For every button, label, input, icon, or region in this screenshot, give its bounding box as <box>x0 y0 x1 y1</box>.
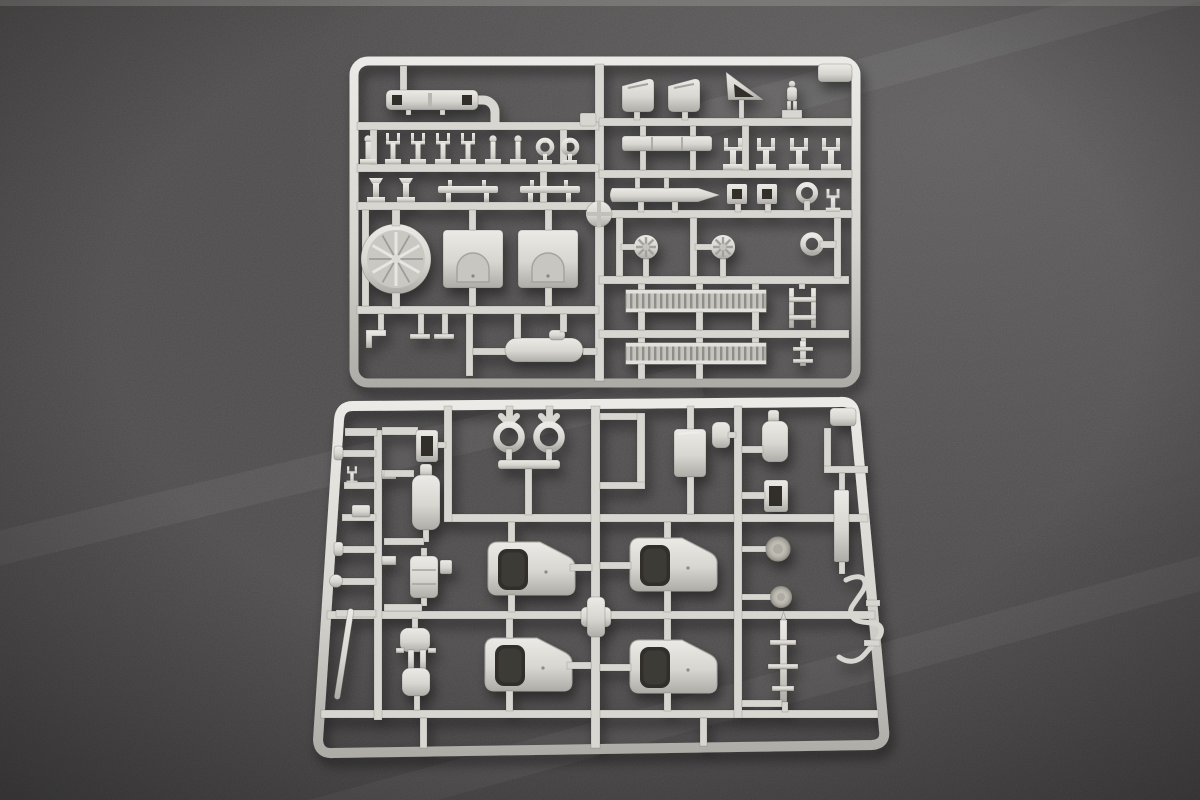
part-square-frame-1 <box>727 184 747 204</box>
corner-tab <box>830 408 856 426</box>
photo-stage <box>0 0 1200 800</box>
photo-canvas <box>0 0 1200 800</box>
corner-tab <box>818 64 852 82</box>
part-square-frame-2 <box>757 184 777 204</box>
part-fan-disc <box>361 224 431 294</box>
part-hatch-plate-2 <box>518 230 578 288</box>
part-hatch-plate-1 <box>443 230 503 288</box>
sprue-gate-joint <box>586 201 612 227</box>
